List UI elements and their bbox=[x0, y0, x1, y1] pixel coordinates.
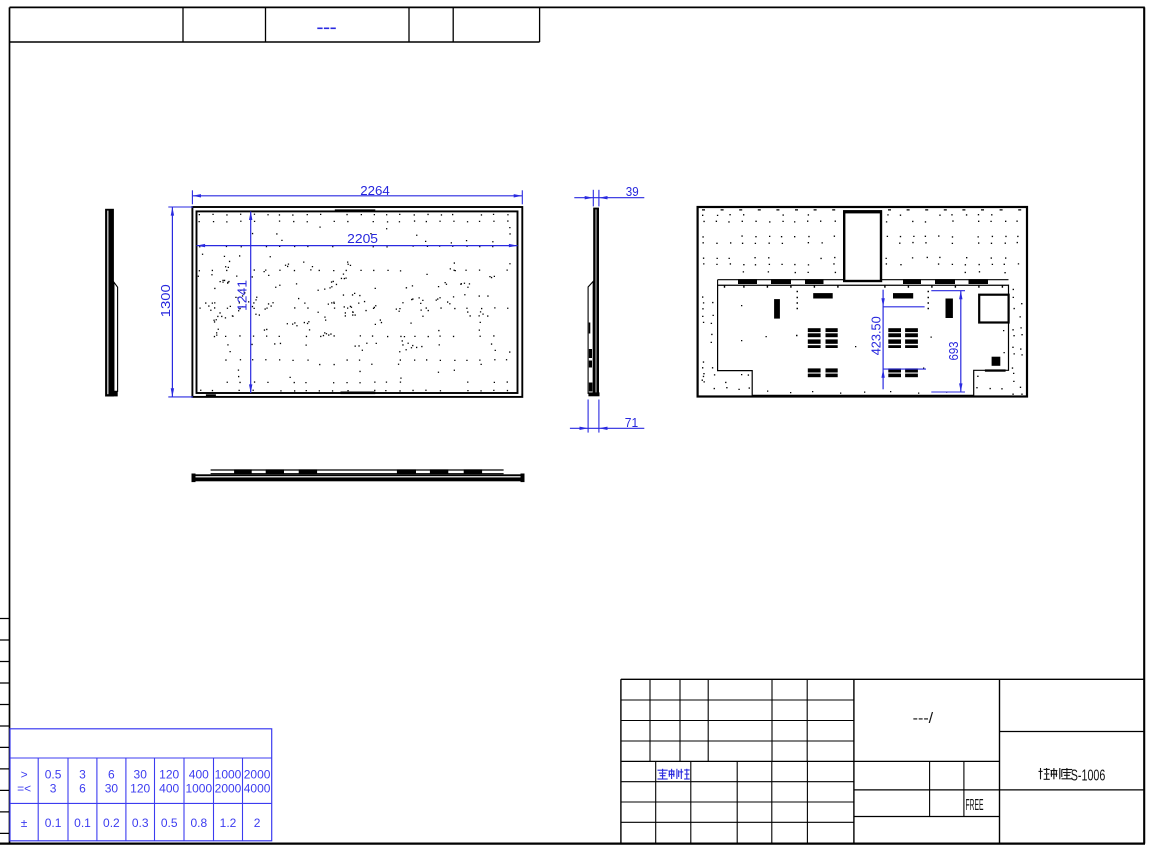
svg-text:0.3: 0.3 bbox=[132, 816, 149, 830]
svg-text:0.1: 0.1 bbox=[74, 816, 91, 830]
svg-text:400: 400 bbox=[189, 767, 209, 781]
svg-text:0.5: 0.5 bbox=[45, 767, 62, 781]
svg-text:±: ± bbox=[21, 816, 28, 830]
svg-text:---/: ---/ bbox=[913, 710, 934, 727]
svg-text:1000: 1000 bbox=[185, 781, 212, 795]
svg-text:3: 3 bbox=[50, 781, 57, 795]
svg-text:1241: 1241 bbox=[235, 280, 250, 311]
svg-text:2205: 2205 bbox=[347, 231, 378, 246]
svg-text:=<: =< bbox=[17, 781, 31, 795]
svg-text:6: 6 bbox=[108, 767, 115, 781]
svg-text:6: 6 bbox=[79, 781, 86, 795]
svg-text:2: 2 bbox=[254, 816, 261, 830]
svg-text:30: 30 bbox=[105, 781, 119, 795]
svg-text:0.1: 0.1 bbox=[45, 816, 62, 830]
svg-text:1.2: 1.2 bbox=[220, 816, 237, 830]
svg-text:2264: 2264 bbox=[360, 183, 390, 198]
svg-text:120: 120 bbox=[159, 767, 179, 781]
svg-text:2000: 2000 bbox=[215, 781, 242, 795]
svg-text:0.5: 0.5 bbox=[161, 816, 178, 830]
svg-text:S-1006: S-1006 bbox=[1071, 768, 1106, 785]
svg-text:693: 693 bbox=[947, 342, 961, 361]
svg-text:FREE: FREE bbox=[966, 797, 984, 814]
svg-text:4000: 4000 bbox=[244, 781, 271, 795]
svg-text:1000: 1000 bbox=[215, 767, 242, 781]
svg-text:400: 400 bbox=[159, 781, 179, 795]
svg-text:>: > bbox=[21, 767, 28, 781]
svg-text:2000: 2000 bbox=[244, 767, 271, 781]
svg-text:120: 120 bbox=[130, 781, 150, 795]
svg-text:0.8: 0.8 bbox=[190, 816, 207, 830]
svg-text:1300: 1300 bbox=[158, 284, 173, 317]
svg-text:39: 39 bbox=[626, 184, 639, 199]
svg-text:71: 71 bbox=[625, 415, 638, 430]
svg-text:3: 3 bbox=[79, 767, 86, 781]
svg-text:30: 30 bbox=[134, 767, 148, 781]
svg-text:423.50: 423.50 bbox=[870, 316, 884, 355]
svg-text:0.2: 0.2 bbox=[103, 816, 120, 830]
